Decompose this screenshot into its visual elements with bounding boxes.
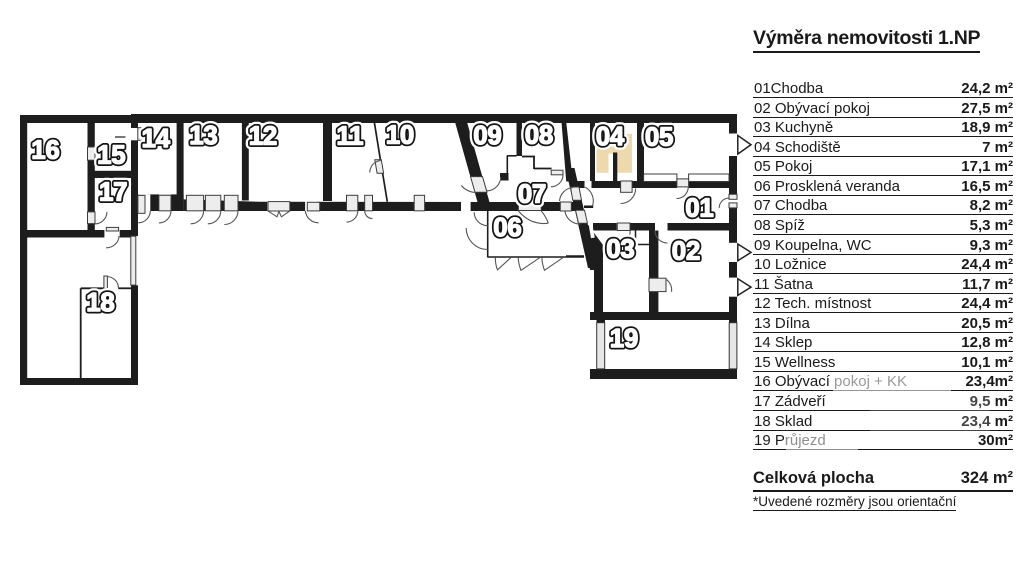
svg-text:03: 03 xyxy=(606,236,634,264)
svg-text:18: 18 xyxy=(86,289,114,317)
svg-text:06: 06 xyxy=(493,214,521,242)
svg-text:01: 01 xyxy=(685,195,713,223)
svg-text:17: 17 xyxy=(99,178,127,206)
svg-text:11: 11 xyxy=(337,122,364,150)
svg-text:10: 10 xyxy=(386,121,414,149)
svg-text:12: 12 xyxy=(249,122,277,150)
svg-text:04: 04 xyxy=(596,123,625,151)
svg-text:14: 14 xyxy=(142,125,171,153)
svg-text:13: 13 xyxy=(189,122,217,150)
svg-text:05: 05 xyxy=(645,123,673,151)
svg-text:19: 19 xyxy=(610,325,638,353)
svg-text:08: 08 xyxy=(525,122,553,150)
svg-text:07: 07 xyxy=(518,181,546,209)
svg-text:15: 15 xyxy=(97,142,125,170)
svg-text:09: 09 xyxy=(473,122,501,150)
svg-text:02: 02 xyxy=(672,237,700,265)
svg-text:16: 16 xyxy=(31,137,59,165)
